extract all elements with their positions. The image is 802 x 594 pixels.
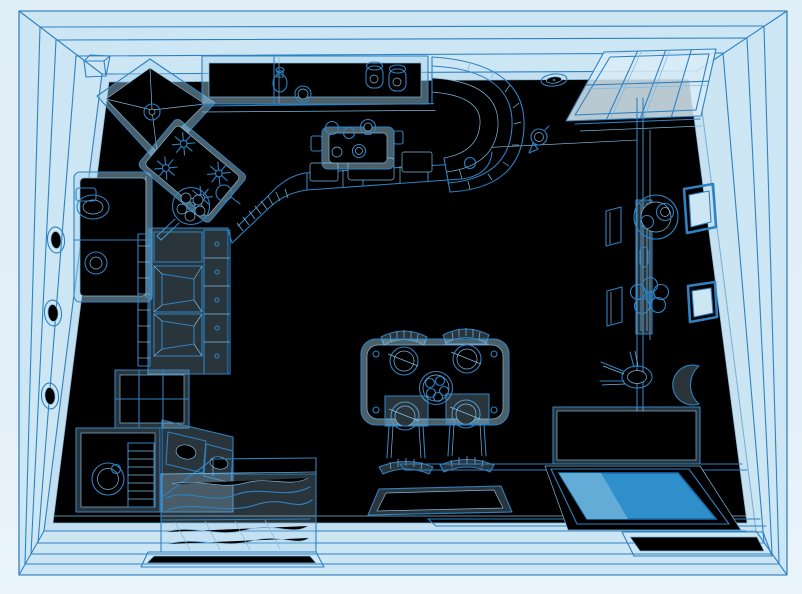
blueprint-canvas xyxy=(0,0,802,594)
kitchen-blueprint xyxy=(0,0,802,594)
pet-bed xyxy=(141,458,324,567)
floor-mat xyxy=(368,486,512,515)
glass-door-cabinet xyxy=(115,370,189,428)
pantry-shelves xyxy=(138,228,230,374)
washing-machine xyxy=(76,428,160,512)
fridge xyxy=(74,172,152,302)
